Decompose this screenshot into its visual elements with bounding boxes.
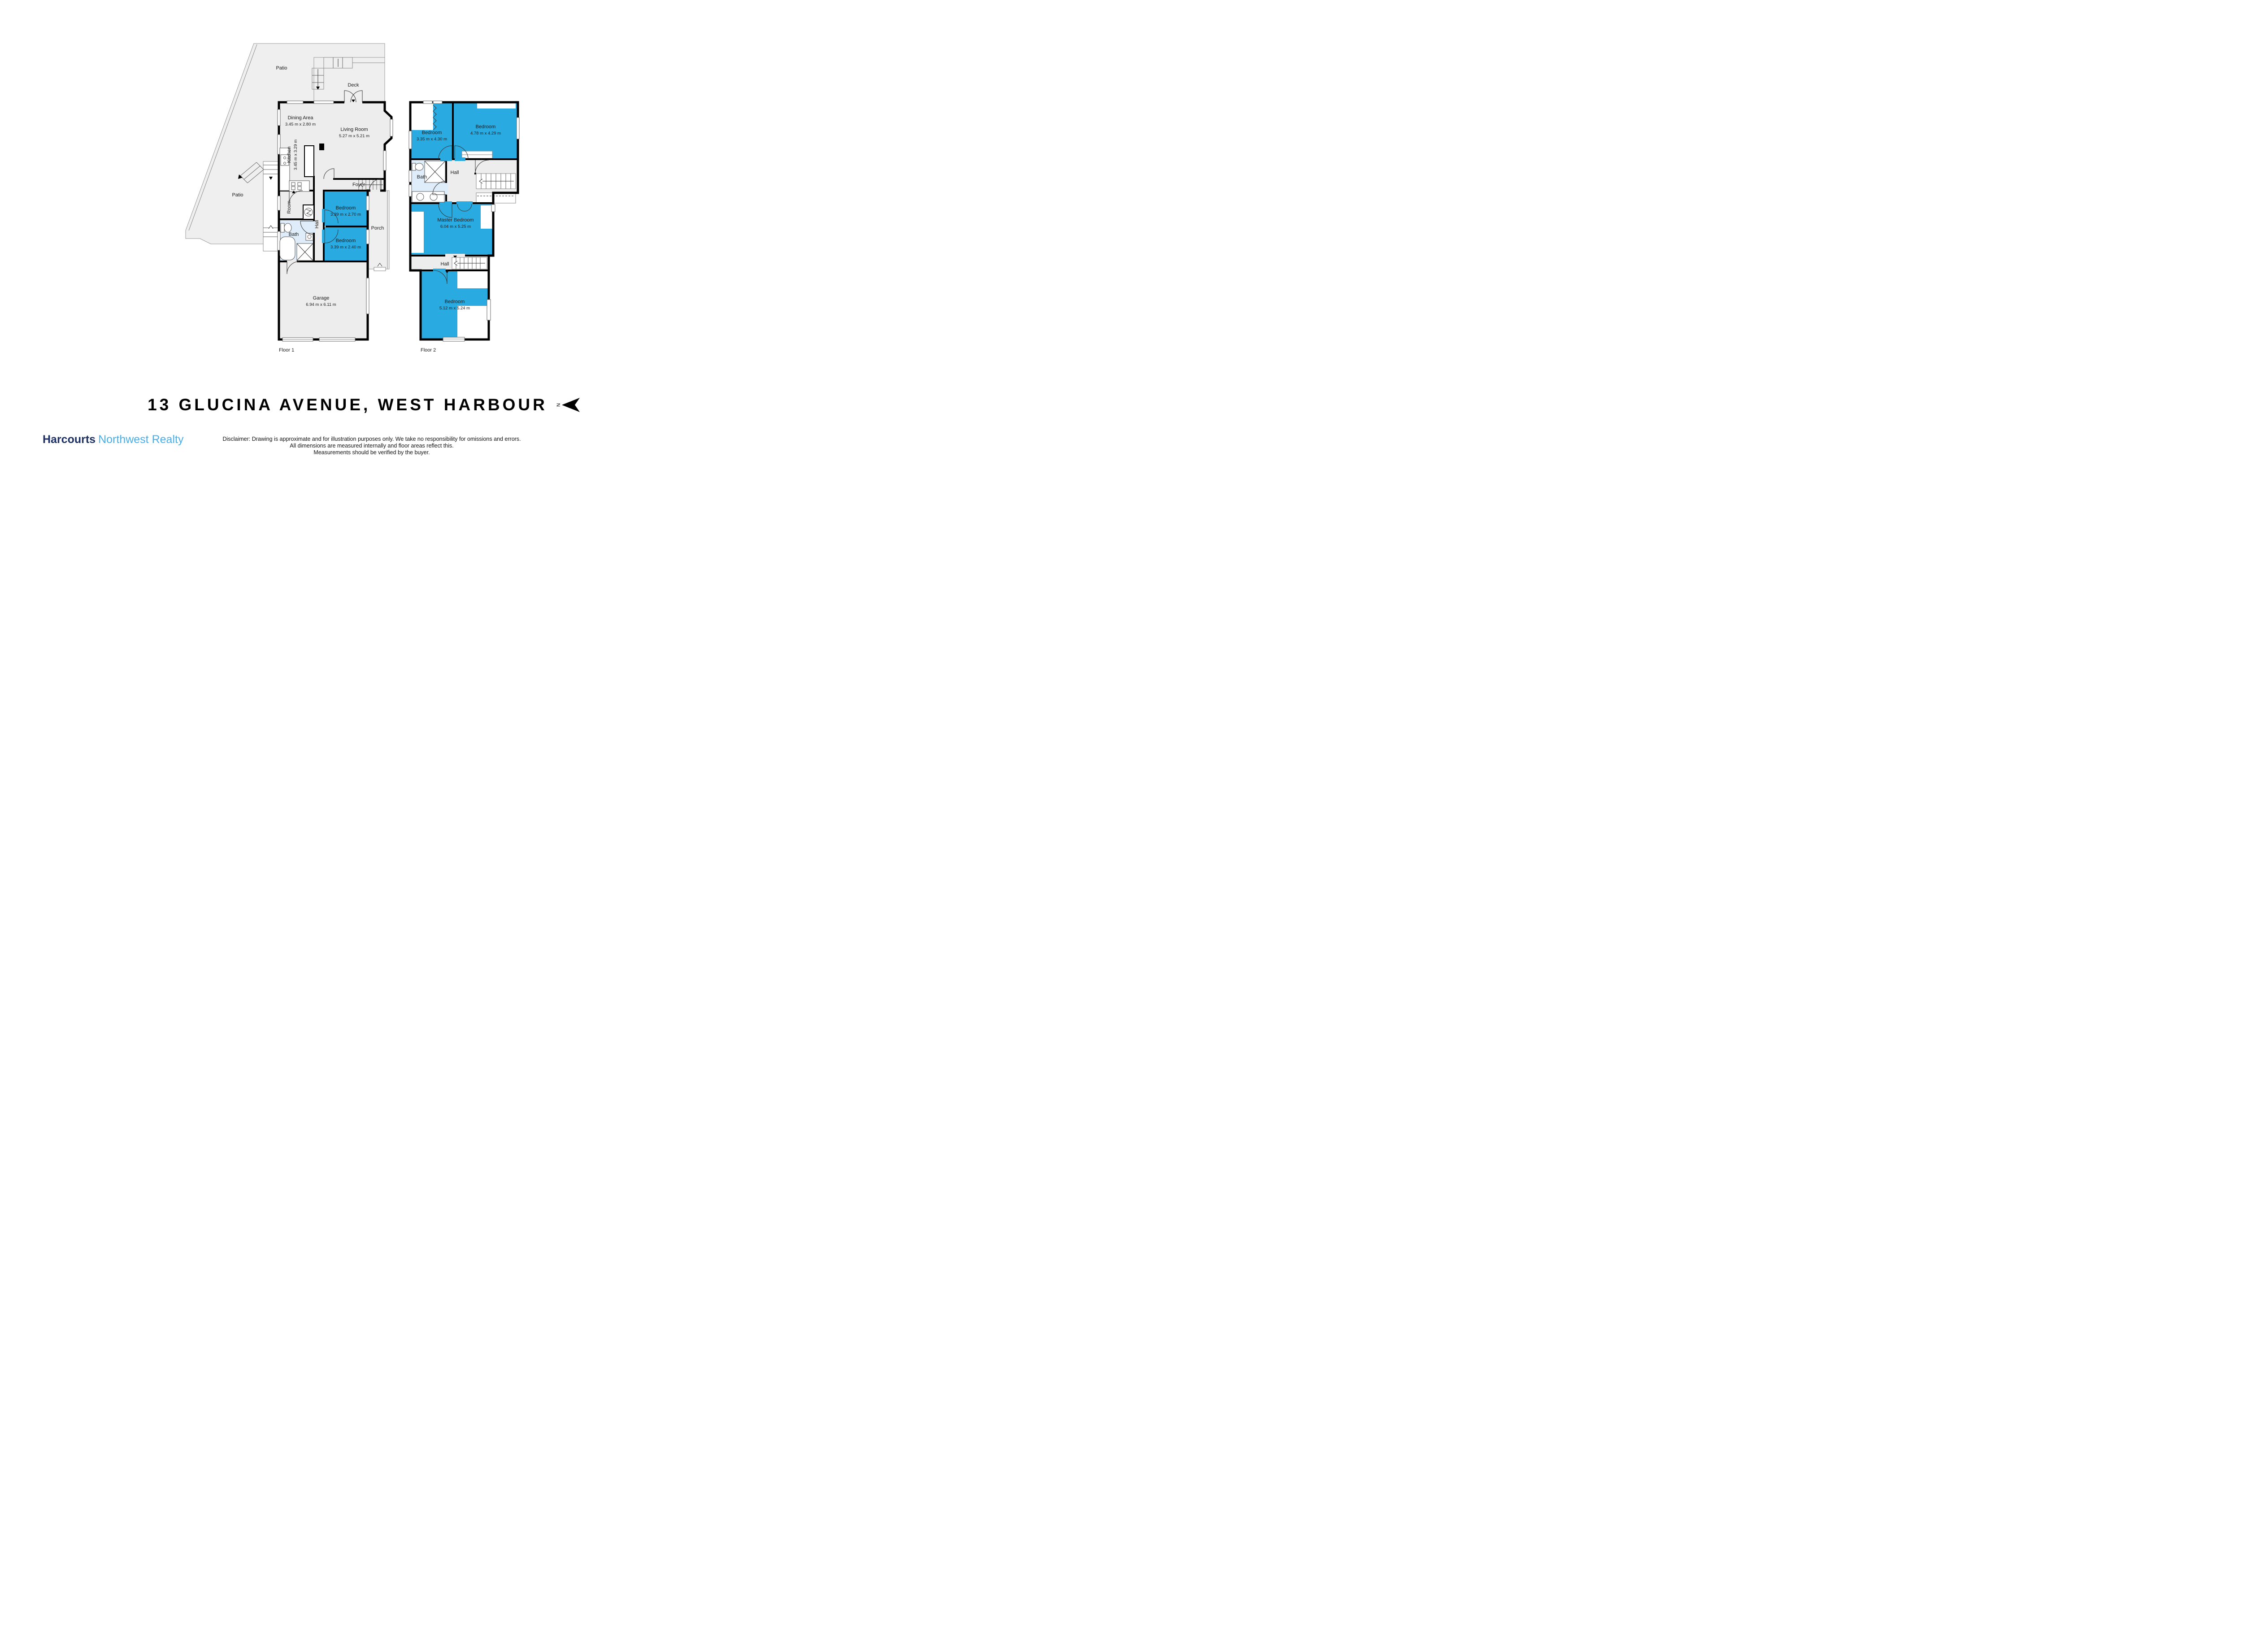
disclaimer-text: Disclaimer: Drawing is approximate and f… — [0, 436, 703, 456]
toilet-icon — [281, 223, 284, 232]
garage-dims: 6.94 m x 6.11 m — [306, 302, 336, 307]
living-dims: 5.27 m x 5.21 m — [339, 134, 369, 139]
f2-bedroom-right-dims: 4.78 m x 4.29 m — [470, 131, 501, 136]
floorplan-page: Dining Area 3.45 m x 2.80 m Living Room … — [0, 0, 703, 469]
deck-label: Deck — [348, 83, 359, 88]
hall1-label: Hall — [314, 220, 320, 229]
f2-bedroom-left-dims: 3.35 m x 4.30 m — [417, 137, 447, 142]
f2-bath-label: Bath — [417, 174, 427, 180]
f2-hall-lower-label: Hall — [441, 261, 449, 267]
kitchen-label: Kitchen — [287, 147, 292, 163]
dining-dims: 3.45 m x 2.80 m — [285, 122, 316, 127]
floor2-plan: Bedroom 3.35 m x 4.30 m Bedroom 4.78 m x… — [409, 101, 519, 353]
north-letter: N — [556, 403, 561, 407]
patio-top-label: Patio — [276, 65, 287, 71]
bedroom2-label: Bedroom — [336, 238, 356, 243]
bedroom1-dims: 3.39 m x 2.70 m — [330, 212, 361, 217]
disclaimer-line-3: Measurements should be verified by the b… — [40, 449, 703, 456]
living-label: Living Room — [340, 127, 368, 132]
f2-bedroom-left-label: Bedroom — [422, 130, 442, 135]
dining-label: Dining Area — [288, 115, 314, 121]
floor2-lower-stairs — [452, 257, 487, 269]
chimney-icon — [319, 143, 324, 150]
kitchen-pantry — [304, 146, 314, 177]
bath1-label: Bath — [289, 232, 299, 237]
floor2-title: Floor 2 — [421, 348, 436, 353]
f2-bedroom-lower-label: Bedroom — [445, 299, 465, 304]
f2-bedroom-right-label: Bedroom — [476, 124, 496, 130]
floor1-title: Floor 1 — [279, 348, 294, 353]
floor2-upper-stairs — [476, 174, 516, 189]
page-title: 13 GLUCINA AVENUE, WEST HARBOUR — [148, 396, 547, 414]
garage-label: Garage — [313, 296, 330, 301]
bedroom2-dims: 3.39 m x 2.40 m — [330, 245, 361, 250]
foyer-label: Foyer — [352, 182, 365, 187]
patio-left-label: Patio — [232, 192, 243, 198]
north-arrow-icon: N — [555, 397, 582, 413]
f2-hall-upper-label: Hall — [451, 170, 459, 175]
f2-master-dims: 6.04 m x 5.25 m — [440, 224, 471, 229]
floor1-plan: Dining Area 3.45 m x 2.80 m Living Room … — [186, 43, 393, 353]
floor1-deck-area — [314, 57, 385, 102]
porch-label: Porch — [371, 226, 384, 231]
disclaimer-line-1: Disclaimer: Drawing is approximate and f… — [40, 436, 703, 443]
water-heater-closet — [303, 205, 314, 219]
disclaimer-line-2: All dimensions are measured internally a… — [40, 443, 703, 449]
floor1-bedroom-bottom-area — [325, 227, 368, 261]
bathtub-icon — [280, 237, 295, 260]
wardrobe-rail — [476, 193, 516, 203]
kitchen-dims: 3.45 m x 3.29 m — [293, 139, 298, 170]
bedroom1-label: Bedroom — [336, 205, 356, 211]
f2-bedroom-lower-dims: 5.12 m x 5.24 m — [439, 306, 470, 311]
address-title-bar: 13 GLUCINA AVENUE, WEST HARBOUR N — [13, 396, 703, 414]
room-label: Room — [287, 200, 292, 213]
f2-master-label: Master Bedroom — [437, 217, 474, 223]
